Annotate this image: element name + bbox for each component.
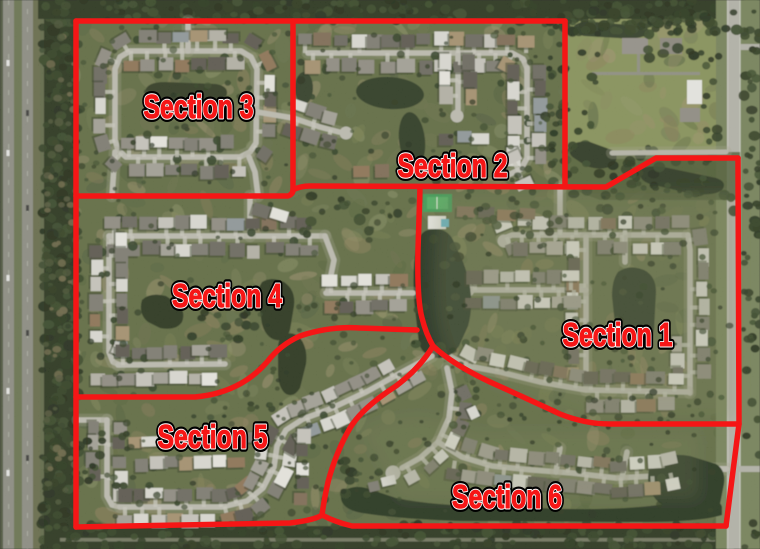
svg-text:Section 4: Section 4 — [172, 277, 282, 314]
svg-text:Section 1: Section 1 — [563, 316, 673, 353]
svg-text:Section 3: Section 3 — [144, 88, 254, 125]
svg-text:Section 6: Section 6 — [452, 478, 562, 515]
svg-text:Section 2: Section 2 — [398, 147, 508, 184]
svg-text:Section 5: Section 5 — [158, 418, 268, 455]
